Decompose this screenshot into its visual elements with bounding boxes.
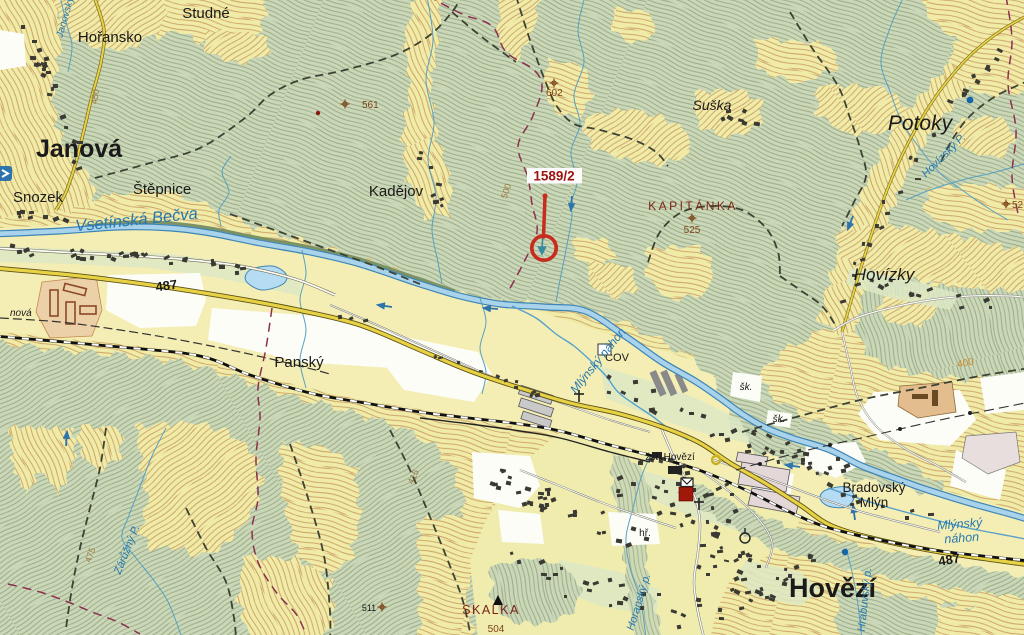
svg-text:Janová: Janová	[36, 135, 122, 163]
svg-text:602: 602	[546, 88, 563, 99]
svg-text:Kadějov: Kadějov	[369, 183, 424, 200]
svg-text:1589/2: 1589/2	[533, 169, 574, 184]
svg-text:Hovízky: Hovízky	[854, 265, 916, 284]
svg-text:Bradovský: Bradovský	[842, 480, 905, 495]
svg-text:525: 525	[684, 225, 701, 236]
svg-text:Hořansko: Hořansko	[78, 29, 142, 46]
svg-text:Suška: Suška	[693, 97, 732, 113]
svg-text:nová: nová	[10, 308, 32, 319]
svg-text:SKALKA: SKALKA	[462, 603, 520, 617]
svg-text:KAPITÁNKA: KAPITÁNKA	[648, 198, 738, 213]
svg-text:511: 511	[362, 603, 376, 613]
svg-text:šk.: šk.	[773, 414, 786, 425]
svg-text:Studné: Studné	[182, 5, 230, 22]
svg-text:561: 561	[362, 100, 379, 111]
svg-text:Potoky: Potoky	[888, 112, 954, 135]
svg-text:hř.: hř.	[639, 528, 651, 539]
svg-text:504: 504	[488, 624, 505, 635]
svg-text:šk.: šk.	[740, 382, 753, 393]
svg-text:Mlýn: Mlýn	[860, 495, 889, 510]
svg-text:náhon: náhon	[944, 530, 980, 546]
svg-text:52: 52	[1012, 200, 1024, 211]
svg-text:Štěpnice: Štěpnice	[133, 181, 191, 198]
svg-text:žst. Hovězí: žst. Hovězí	[645, 452, 695, 463]
svg-text:487: 487	[155, 277, 179, 295]
svg-text:Panský: Panský	[274, 354, 324, 371]
svg-text:Snozek: Snozek	[13, 189, 64, 206]
